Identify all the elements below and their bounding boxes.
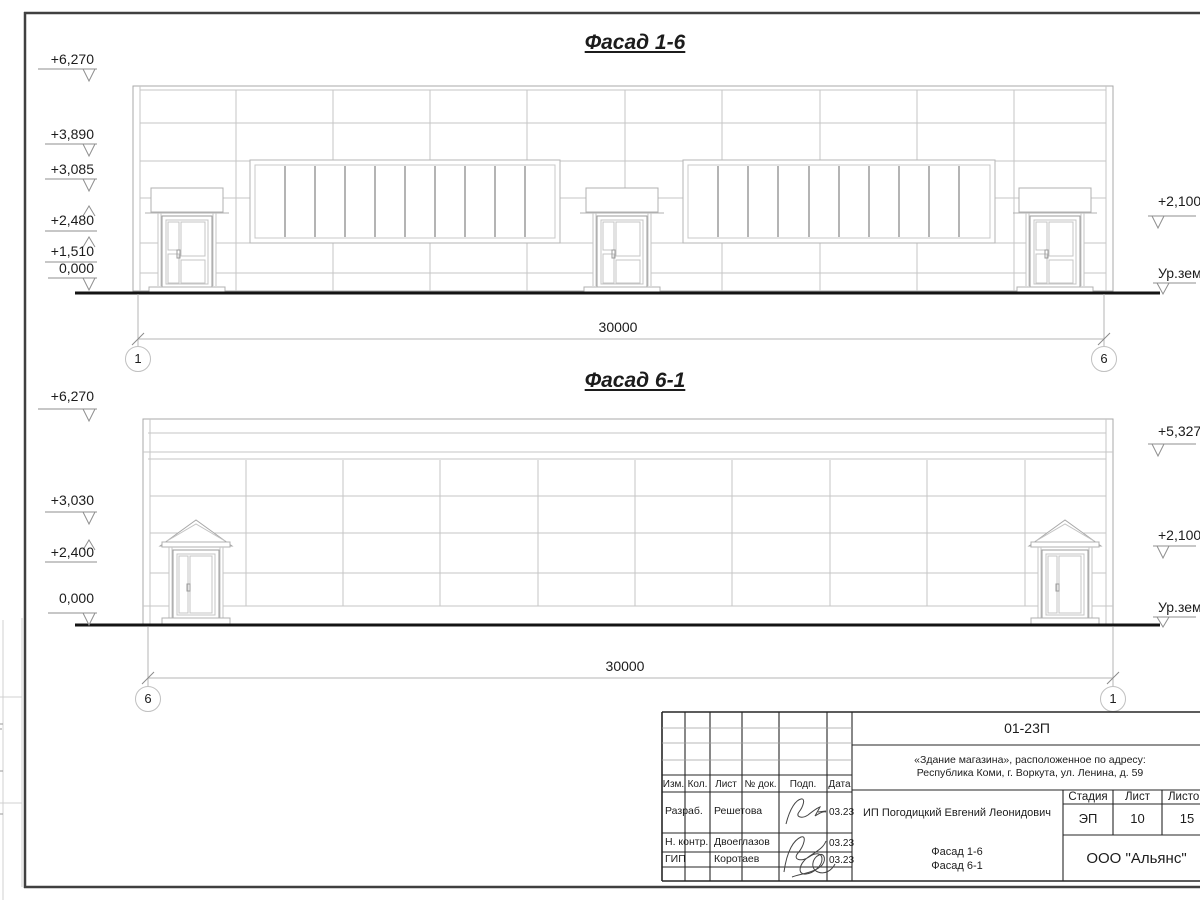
titleblock-sheet-header: Лист <box>1113 791 1162 804</box>
titleblock-sheet-number: 10 <box>1113 812 1162 827</box>
axis-bubble-label: 1 <box>1100 692 1126 707</box>
elevation-label: +2,100 <box>1158 528 1200 544</box>
elevation-label: +1,510 <box>32 244 94 260</box>
entrance-door-left <box>145 188 229 292</box>
drawing-sheet: Фасад 1-6 Фасад 6-1 +6,270 +3,890 +3,085… <box>0 0 1200 900</box>
titleblock-col-data: Дата <box>827 779 852 790</box>
titleblock-stage-value: ЭП <box>1063 812 1113 827</box>
titleblock-col-ndok: № док. <box>742 779 779 790</box>
titleblock-doc-number: 01-23П <box>852 721 1200 737</box>
signer-date: 03.23 <box>829 807 854 818</box>
dimension-label: 30000 <box>558 320 678 336</box>
entrance-door-middle <box>580 188 664 292</box>
facade-61-title: Фасад 6-1 <box>500 369 770 393</box>
axis-bubble-label: 6 <box>1091 352 1117 367</box>
elevation-label: +3,030 <box>32 493 94 509</box>
axis-bubble-label: 1 <box>125 352 151 367</box>
titleblock-drawing-title-1: Фасад 1-6 <box>854 846 1060 858</box>
signer-role: Разраб. <box>665 806 703 818</box>
entrance-door-right <box>1013 188 1097 292</box>
ground-level-label: Ур.зем <box>1158 266 1200 282</box>
elevation-label: +6,270 <box>32 52 94 68</box>
titleblock-col-izm: Изм. <box>662 779 685 790</box>
elevation-label: +2,400 <box>32 545 94 561</box>
elevation-label: +3,085 <box>32 162 94 178</box>
signature-reshetova <box>786 799 826 824</box>
axis-bubble-label: 6 <box>135 692 161 707</box>
titleblock-client: ИП Погодицкий Евгений Леонидович <box>854 807 1060 819</box>
titleblock-sheets-header: Листо <box>1168 791 1199 804</box>
elevation-label: +6,270 <box>32 389 94 405</box>
signer-name: Коротаев <box>714 854 759 866</box>
facade-16-title: Фасад 1-6 <box>500 31 770 55</box>
titleblock-drawing-title-2: Фасад 6-1 <box>854 860 1060 872</box>
elevation-label: +2,100 <box>1158 194 1200 210</box>
titleblock-col-kol: Кол. <box>685 779 710 790</box>
ribbon-window-right <box>683 160 995 243</box>
elevation-label: +5,327 <box>1158 424 1200 440</box>
ribbon-window-left <box>250 160 560 243</box>
signer-role: ГИП <box>665 854 686 866</box>
elevation-label: 0,000 <box>32 261 94 277</box>
titleblock-object-address-1: «Здание магазина», расположенное по адре… <box>856 755 1200 767</box>
titleblock-stage-header: Стадия <box>1063 791 1113 804</box>
ground-level-label: Ур.зем <box>1158 600 1200 616</box>
signer-role: Н. контр. <box>665 837 708 849</box>
signer-date: 03.23 <box>829 838 854 849</box>
elevation-label: 0,000 <box>32 591 94 607</box>
titleblock-col-list: Лист <box>710 779 742 790</box>
titleblock-company: ООО "Альянс" <box>1063 851 1200 868</box>
signer-name: Решетова <box>714 806 762 818</box>
titleblock-object-address-2: Республика Коми, г. Воркута, ул. Ленина,… <box>856 768 1200 780</box>
signer-date: 03.23 <box>829 855 854 866</box>
titleblock-col-podp: Подп. <box>779 779 827 790</box>
titleblock-sheets-total: 15 <box>1162 812 1200 827</box>
elevation-label: +3,890 <box>32 127 94 143</box>
signer-name: Двоеглазов <box>714 837 770 849</box>
elevation-label: +2,480 <box>32 213 94 229</box>
dimension-label: 30000 <box>565 659 685 675</box>
side-stamp-fragment <box>0 618 22 900</box>
